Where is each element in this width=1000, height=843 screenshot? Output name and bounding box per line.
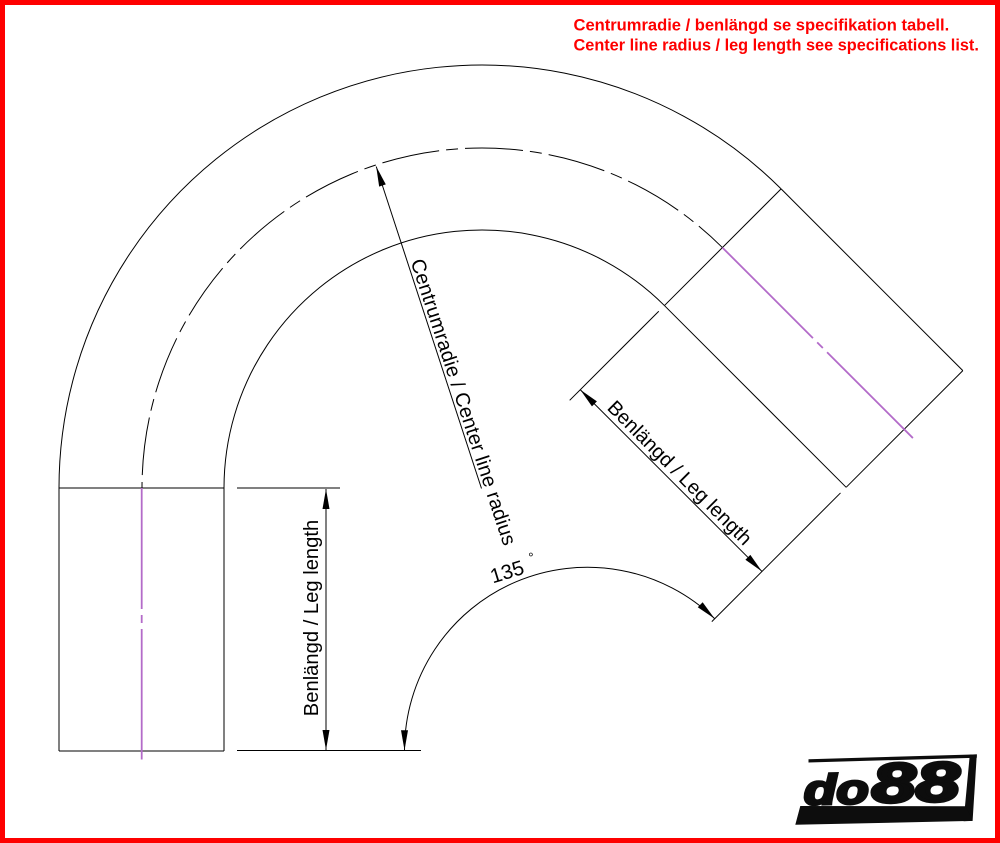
svg-text:do: do <box>803 765 869 813</box>
svg-text:88: 88 <box>871 751 960 815</box>
svg-text:Centrumradie / benlängd se spe: Centrumradie / benlängd se specifikation… <box>574 16 950 35</box>
svg-text:Benlängd / Leg length: Benlängd / Leg length <box>301 520 323 716</box>
svg-text:Center line radius / leg lengt: Center line radius / leg length see spec… <box>574 36 979 54</box>
